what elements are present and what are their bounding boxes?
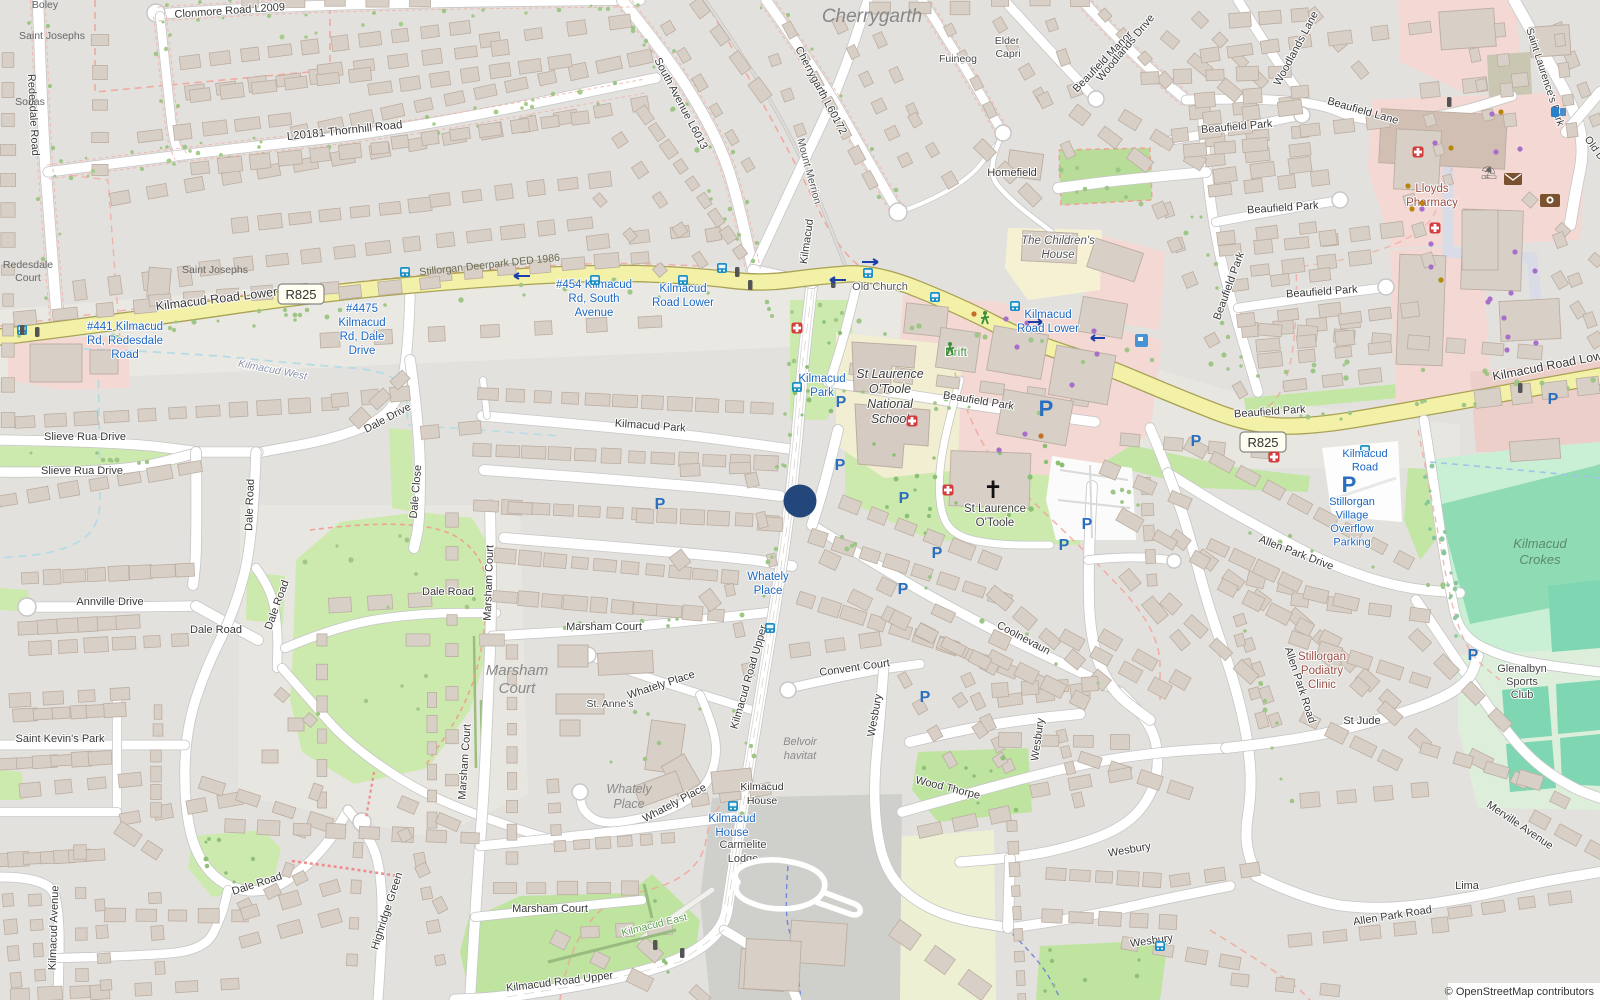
svg-text:Stillorgan: Stillorgan [1329, 496, 1375, 508]
svg-text:Capri: Capri [995, 48, 1020, 60]
svg-text:Sports: Sports [1506, 676, 1538, 688]
svg-text:Avenue: Avenue [575, 307, 614, 319]
svg-text:Boley: Boley [32, 0, 59, 11]
svg-text:O'Toole: O'Toole [976, 517, 1015, 529]
svg-text:Whately: Whately [747, 571, 789, 583]
svg-text:Saint Josephs: Saint Josephs [182, 264, 248, 276]
svg-text:Marsham Court: Marsham Court [566, 621, 642, 633]
svg-text:P: P [898, 581, 909, 598]
svg-text:Homefield: Homefield [987, 167, 1037, 179]
svg-text:Kilmacud: Kilmacud [1342, 448, 1387, 460]
svg-text:Whately: Whately [606, 782, 652, 796]
svg-text:The Children's: The Children's [1021, 235, 1095, 247]
svg-text:Old Church: Old Church [852, 281, 908, 293]
svg-text:National: National [867, 397, 914, 411]
svg-text:Club: Club [1511, 689, 1534, 701]
svg-text:P: P [655, 496, 666, 513]
svg-text:Court: Court [15, 272, 41, 284]
svg-text:Dale Road: Dale Road [422, 586, 474, 598]
svg-text:P: P [1468, 647, 1479, 664]
svg-text:St Laurence: St Laurence [856, 367, 923, 381]
svg-text:Place: Place [613, 797, 644, 811]
svg-text:Sonas: Sonas [15, 96, 45, 108]
svg-text:Clinic: Clinic [1308, 679, 1336, 691]
svg-text:Rd, Redesdale: Rd, Redesdale [87, 335, 163, 347]
svg-text:Crokes: Crokes [1519, 552, 1561, 567]
svg-text:Belvoir: Belvoir [783, 736, 818, 748]
svg-text:Kilmacud: Kilmacud [1513, 536, 1567, 551]
svg-text:P: P [899, 490, 910, 507]
svg-text:Marsham Court: Marsham Court [512, 903, 588, 915]
svg-text:Drive: Drive [349, 345, 376, 357]
svg-text:Redesdale: Redesdale [3, 259, 53, 271]
svg-text:Annville Drive: Annville Drive [76, 596, 143, 608]
svg-text:Rd, Dale: Rd, Dale [340, 331, 385, 343]
svg-text:P: P [835, 457, 846, 474]
svg-text:Kilmacud: Kilmacud [740, 781, 783, 793]
svg-text:Road: Road [111, 349, 139, 361]
svg-text:Slieve Rua Drive: Slieve Rua Drive [41, 465, 123, 477]
svg-text:Road Lower: Road Lower [652, 297, 714, 309]
svg-text:Place: Place [754, 585, 783, 597]
svg-text:Kilmacud: Kilmacud [798, 373, 845, 385]
svg-text:Overflow: Overflow [1330, 523, 1373, 535]
svg-text:Park: Park [810, 387, 834, 399]
svg-text:Road: Road [1352, 461, 1378, 473]
svg-text:Village: Village [1336, 509, 1369, 521]
svg-text:R825: R825 [285, 287, 316, 302]
svg-text:Glenalbyn: Glenalbyn [1497, 663, 1547, 675]
svg-text:P: P [1191, 433, 1202, 450]
svg-text:School: School [871, 412, 910, 426]
svg-text:Marsham: Marsham [486, 662, 549, 679]
svg-text:Saint Kevin's Park: Saint Kevin's Park [16, 733, 105, 745]
svg-text:House: House [747, 795, 778, 807]
svg-text:P: P [1082, 516, 1093, 533]
svg-text:⛱: ⛱ [1481, 165, 1498, 180]
svg-text:Lloyds: Lloyds [1415, 183, 1448, 195]
svg-text:Slieve Rua Drive: Slieve Rua Drive [44, 431, 126, 443]
svg-text:© OpenStreetMap contributors: © OpenStreetMap contributors [1445, 986, 1595, 998]
svg-text:Pharmacy: Pharmacy [1406, 197, 1458, 209]
svg-text:Kilmacud: Kilmacud [708, 813, 755, 825]
svg-text:Lima: Lima [1455, 880, 1480, 892]
svg-text:havitat: havitat [784, 750, 817, 762]
svg-text:Court: Court [499, 680, 537, 697]
svg-text:Fuineog: Fuineog [939, 53, 977, 65]
svg-text:P: P [920, 689, 931, 706]
svg-text:St Laurence: St Laurence [964, 503, 1026, 515]
svg-text:✝: ✝ [983, 477, 1003, 504]
svg-text:St Jude: St Jude [1343, 715, 1380, 727]
svg-text:P: P [932, 545, 943, 562]
svg-text:Stillorgan: Stillorgan [1298, 651, 1346, 663]
svg-text:Cherrygarth: Cherrygarth [822, 6, 922, 27]
svg-text:St. Anne's: St. Anne's [587, 698, 634, 710]
svg-text:Elder: Elder [995, 35, 1020, 47]
svg-text:House: House [715, 827, 748, 839]
svg-text:P: P [1342, 472, 1357, 497]
svg-text:O'Toole: O'Toole [869, 382, 911, 396]
svg-text:P: P [1548, 391, 1559, 408]
svg-text:Rd, South: Rd, South [568, 293, 619, 305]
svg-text:Saint Josephs: Saint Josephs [19, 30, 85, 42]
svg-text:#4475: #4475 [346, 303, 378, 315]
svg-text:Podiatry: Podiatry [1301, 665, 1343, 677]
svg-text:P: P [1059, 537, 1070, 554]
svg-text:House: House [1041, 249, 1074, 261]
svg-text:R825: R825 [1247, 435, 1278, 450]
svg-text:Dale Road: Dale Road [190, 624, 242, 636]
svg-text:Carmelite: Carmelite [719, 839, 766, 851]
svg-text:P: P [1039, 396, 1054, 421]
svg-text:Parking: Parking [1333, 536, 1370, 548]
svg-text:Kilmacud: Kilmacud [1024, 309, 1071, 321]
svg-text:P: P [836, 394, 847, 411]
svg-text:Dale Road: Dale Road [243, 479, 257, 531]
svg-text:Kilmacud: Kilmacud [338, 317, 385, 329]
svg-text:#441 Kilmacud: #441 Kilmacud [87, 321, 163, 333]
